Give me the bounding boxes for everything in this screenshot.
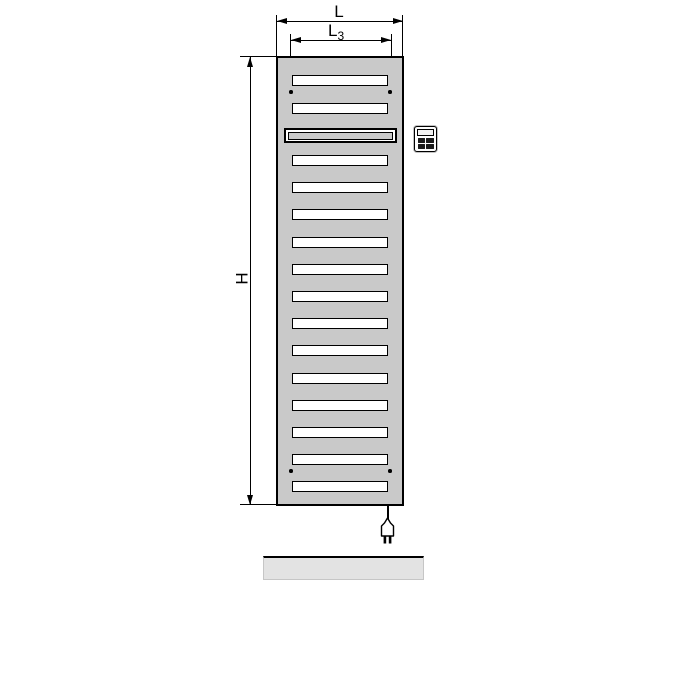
control-unit-button <box>418 138 425 143</box>
radiator-slot <box>292 209 388 220</box>
dimension-label-L3-sub: 3 <box>337 29 344 43</box>
floor-strip <box>263 556 424 580</box>
radiator-slot <box>292 345 388 356</box>
radiator-panel <box>276 56 404 506</box>
heating-element-bar-inner <box>288 132 393 141</box>
radiator-slot <box>292 182 388 193</box>
extension-line <box>240 56 277 57</box>
control-unit-button <box>426 144 433 149</box>
radiator-slot <box>292 103 388 114</box>
power-plug-icon <box>377 517 398 546</box>
mounting-hole <box>289 90 293 94</box>
mounting-hole <box>289 469 293 473</box>
arrowhead-right-icon <box>393 18 403 24</box>
control-unit-button <box>418 144 425 149</box>
extension-line <box>240 504 277 505</box>
radiator-slot <box>292 237 388 248</box>
mounting-hole <box>388 90 392 94</box>
dimension-label-L3: L3 <box>328 22 344 39</box>
radiator-slot <box>292 75 388 86</box>
radiator-slot <box>292 400 388 411</box>
control-unit-buttons <box>418 138 434 150</box>
radiator-slot <box>292 427 388 438</box>
radiator-slot <box>292 155 388 166</box>
arrowhead-down-icon <box>247 495 253 505</box>
arrowhead-right-icon <box>381 37 391 43</box>
dimension-label-L: L <box>331 3 347 20</box>
radiator-slot <box>292 291 388 302</box>
radiator-slot <box>292 264 388 275</box>
mounting-hole <box>388 469 392 473</box>
radiator-slot <box>292 481 388 492</box>
arrowhead-up-icon <box>247 57 253 67</box>
control-unit-icon <box>414 126 437 152</box>
control-unit-button <box>426 138 433 143</box>
radiator-slot <box>292 318 388 329</box>
radiator-slot <box>292 373 388 384</box>
control-unit-display <box>417 129 434 136</box>
radiator-dimension-drawing: L L3 H <box>0 0 700 700</box>
extension-line <box>391 34 392 56</box>
arrowhead-left-icon <box>277 18 287 24</box>
arrowhead-left-icon <box>291 37 301 43</box>
dimension-label-H: H <box>234 272 251 284</box>
radiator-slot <box>292 454 388 465</box>
